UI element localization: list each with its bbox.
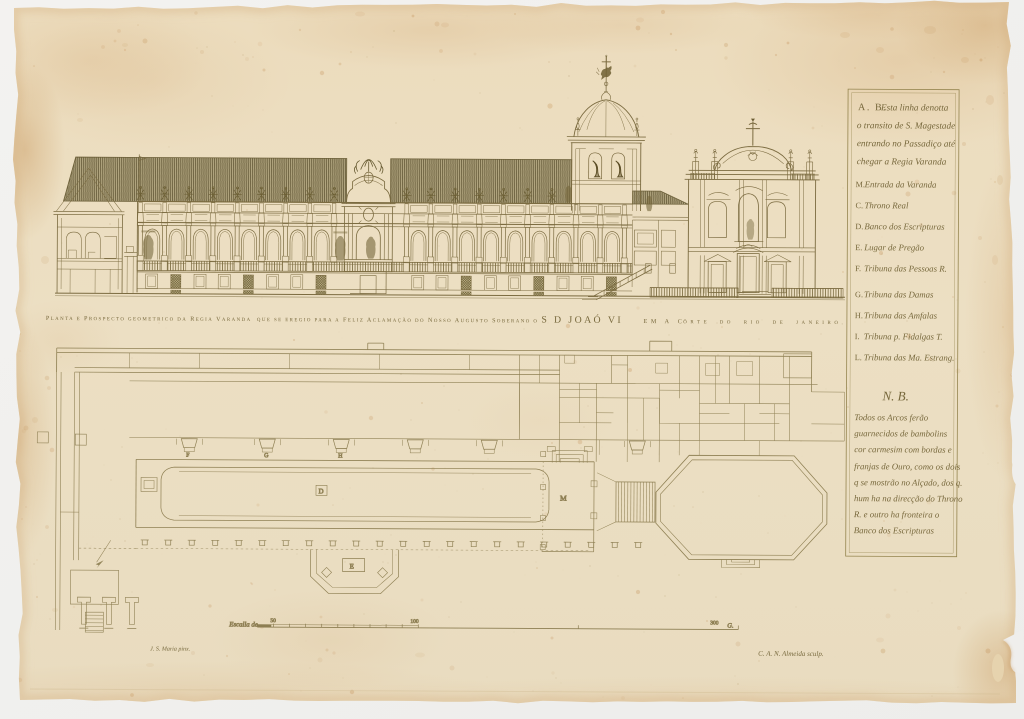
svg-text:q se mostrão no Alçado, dos q.: q se mostrão no Alçado, dos q. bbox=[854, 477, 962, 488]
svg-text:Tribuna das Amfalas: Tribuna das Amfalas bbox=[864, 310, 938, 320]
svg-text:Esta linha denotta: Esta linha denotta bbox=[880, 102, 949, 112]
svg-text:Lugar de Pregão: Lugar de Pregão bbox=[863, 242, 924, 252]
svg-text:Entrada da Varanda: Entrada da Varanda bbox=[864, 179, 937, 189]
svg-text:300: 300 bbox=[710, 620, 719, 626]
svg-text:chegar a Regia Varanda: chegar a Regia Varanda bbox=[857, 156, 947, 166]
svg-text:F.: F. bbox=[855, 264, 861, 273]
svg-text:Tribuna das Ma. Estrang.: Tribuna das Ma. Estrang. bbox=[864, 352, 955, 362]
svg-text:E.: E. bbox=[855, 243, 862, 252]
svg-text:E: E bbox=[350, 563, 354, 571]
svg-text:Tribuna das Damas: Tribuna das Damas bbox=[864, 289, 934, 299]
svg-text:G.: G. bbox=[727, 622, 734, 629]
svg-text:I.: I. bbox=[855, 332, 860, 341]
svg-text:Tribuna das Pessoas R.: Tribuna das Pessoas R. bbox=[864, 263, 947, 273]
svg-text:100: 100 bbox=[410, 619, 419, 625]
svg-text:Banco dos Escripturas: Banco dos Escripturas bbox=[854, 525, 935, 535]
svg-text:Escalla de: Escalla de bbox=[228, 621, 258, 628]
svg-text:J. S. Maria pinx.: J. S. Maria pinx. bbox=[150, 646, 190, 652]
svg-text:R. e outro ha fronteira o: R. e outro ha fronteira o bbox=[853, 509, 940, 519]
svg-text:Banco dos Escripturas: Banco dos Escripturas bbox=[864, 221, 945, 231]
svg-text:D.: D. bbox=[855, 222, 863, 231]
svg-text:C.: C. bbox=[855, 201, 863, 210]
svg-text:M: M bbox=[560, 494, 567, 503]
svg-text:L.: L. bbox=[855, 353, 862, 362]
svg-text:M.: M. bbox=[856, 180, 865, 189]
svg-text:N. B.: N. B. bbox=[881, 388, 908, 403]
svg-text:o transito de S. Magestade: o transito de S. Magestade bbox=[857, 120, 955, 131]
svg-text:Tribuna p. Fidalgas T.: Tribuna p. Fidalgas T. bbox=[864, 331, 943, 341]
svg-text:D: D bbox=[318, 487, 323, 495]
svg-text:G: G bbox=[264, 453, 269, 459]
svg-text:H.: H. bbox=[855, 311, 863, 320]
svg-text:entrando no Passadiço até: entrando no Passadiço até bbox=[857, 138, 956, 149]
svg-text:hum ha na direcção do Throno: hum ha na direcção do Throno bbox=[854, 493, 963, 504]
svg-text:Throno Real: Throno Real bbox=[864, 200, 909, 210]
svg-text:G.: G. bbox=[855, 290, 863, 299]
svg-text:franjas de Ouro, como os dois: franjas de Ouro, como os dois bbox=[854, 461, 961, 472]
svg-text:C. A. N. Almeida sculp.: C. A. N. Almeida sculp. bbox=[758, 650, 824, 658]
svg-text:guarnecidos de bambolins: guarnecidos de bambolins bbox=[854, 428, 947, 438]
svg-text:cor carmesim com bordas e: cor carmesim com bordas e bbox=[854, 444, 952, 455]
svg-text:50: 50 bbox=[270, 618, 276, 624]
svg-text:H: H bbox=[338, 453, 343, 459]
svg-text:Todos os Arcos ferão: Todos os Arcos ferão bbox=[854, 412, 928, 422]
